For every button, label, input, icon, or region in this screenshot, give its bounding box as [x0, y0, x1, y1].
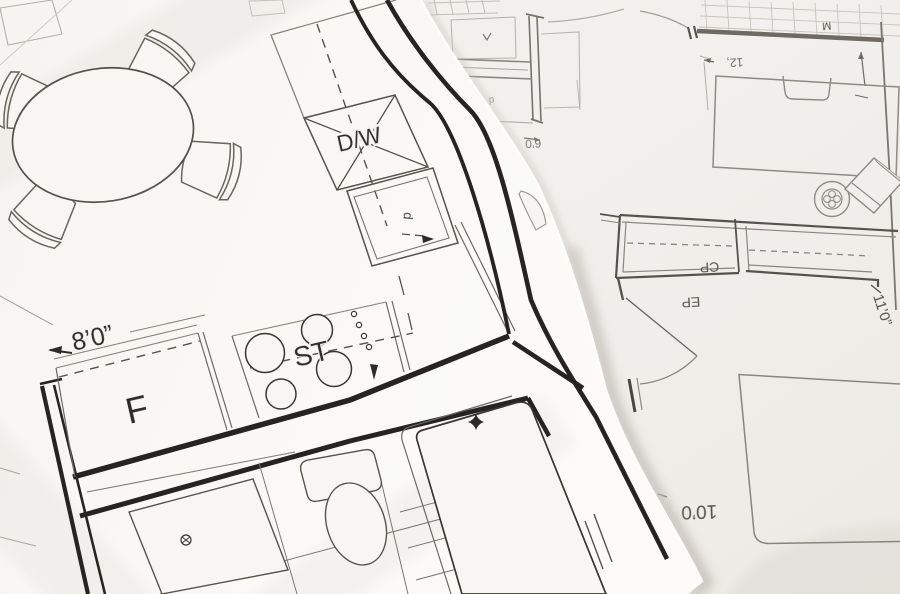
svg-text:M: M — [822, 19, 832, 32]
svg-text:10’0: 10’0 — [681, 500, 718, 522]
svg-text:EP: EP — [681, 294, 700, 311]
svg-text:d: d — [400, 212, 416, 221]
svg-text:12,: 12, — [726, 55, 743, 70]
svg-text:CP: CP — [699, 259, 719, 276]
